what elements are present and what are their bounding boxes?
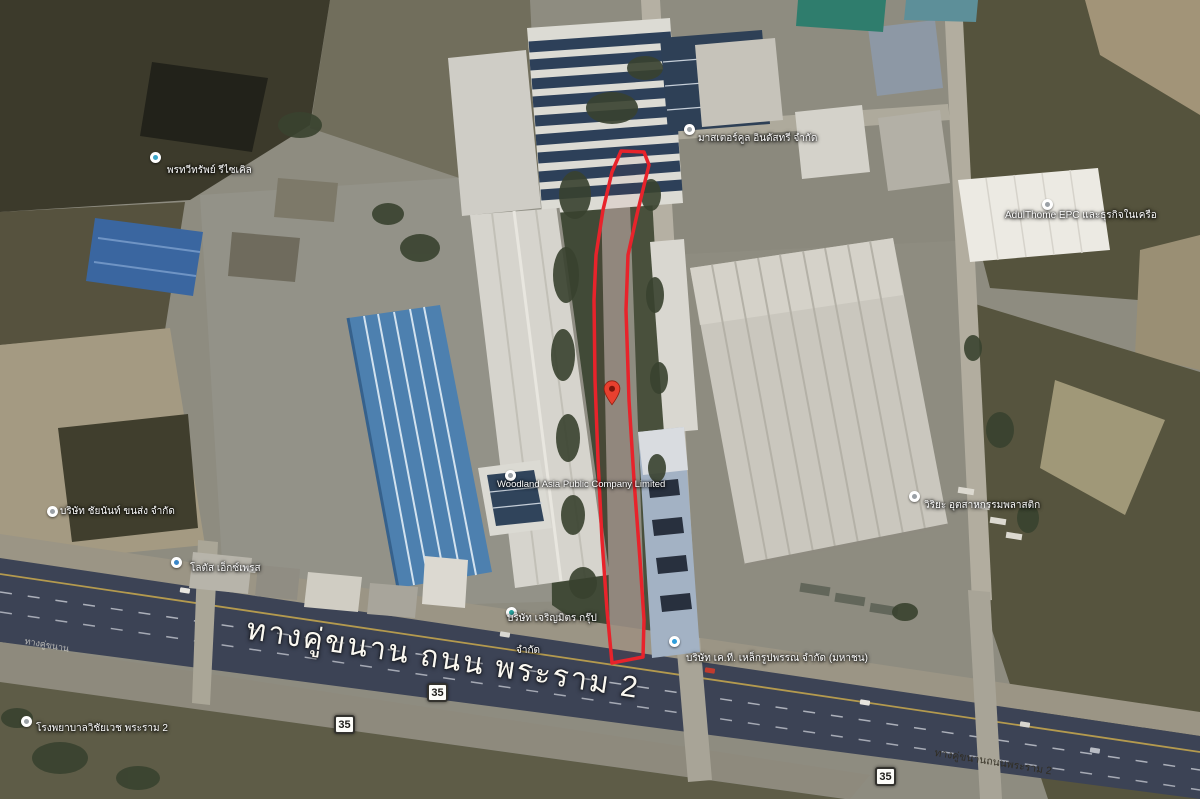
poi-pin-transport[interactable] [47,506,58,517]
poi-pin-glyph [153,155,158,160]
poi-pin-glyph [50,509,55,514]
poi-label-transport[interactable]: บริษัท ชัยนันท์ ขนส่ง จำกัด [60,506,175,517]
route-shield-35: 35 [334,715,355,734]
location-pin[interactable] [603,380,621,406]
poi-label-charoenmit-2[interactable]: จำกัด [516,645,540,656]
poi-label-plastics[interactable]: วิริยะ อุตสาหกรรมพลาสติก [924,500,1040,511]
poi-pin-epc[interactable] [1042,199,1053,210]
poi-pin-factory-top[interactable] [684,124,695,135]
poi-label-steel[interactable]: บริษัท เค.ที. เหล็กรูปพรรณ จำกัด (มหาชน) [686,653,868,664]
poi-pin-plastics[interactable] [909,491,920,502]
poi-label-charoenmit[interactable]: บริษัท เจริญมิตร กรุ๊ป [507,613,597,624]
poi-label-factory-top[interactable]: มาสเตอร์คูล อินดัสทรี จำกัด [698,133,817,144]
poi-label-epc[interactable]: AdulThome EPC และธุรกิจในเครือ [1005,210,1157,221]
poi-pin-hospital[interactable] [21,716,32,727]
poi-pin-recycle[interactable] [150,152,161,163]
poi-label-lotus[interactable]: โลตัส เอ็กซ์เพรส [190,563,261,574]
route-shield-35: 35 [427,683,448,702]
poi-pin-glyph [687,127,692,132]
poi-label-hospital[interactable]: โรงพยาบาลวิชัยเวช พระราม 2 [36,723,168,734]
poi-label-recycle[interactable]: พรทวีทรัพย์ รีไซเคิล [167,165,252,176]
poi-pin-glyph [672,639,677,644]
route-shield-35: 35 [875,767,896,786]
poi-pin-glyph [174,560,179,565]
poi-pin-glyph [508,473,513,478]
poi-pin-lotus[interactable] [171,557,182,568]
poi-pin-glyph [24,719,29,724]
poi-label-woodland[interactable]: Woodland Asia Public Company Limited [497,479,665,490]
poi-pin-glyph [1045,202,1050,207]
satellite-map[interactable]: ทางคู่ขนาน ถนน พระราม 2 ทางคู่ขนานถนนพระ… [0,0,1200,799]
poi-pin-steel[interactable] [669,636,680,647]
poi-pin-glyph [912,494,917,499]
